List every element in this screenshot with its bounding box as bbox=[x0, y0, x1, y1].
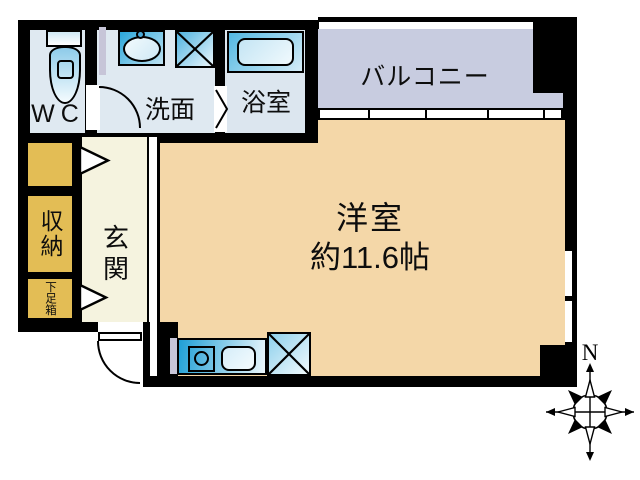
balcony-corner-wall bbox=[533, 17, 577, 93]
entrance-label: 玄関 bbox=[97, 224, 134, 286]
window-divider bbox=[543, 110, 545, 118]
bathtub-inner-icon bbox=[237, 38, 294, 66]
compass-ray-se bbox=[597, 419, 612, 434]
kitchen-sink-icon bbox=[221, 346, 256, 371]
entrance-right-wall-gap bbox=[149, 137, 157, 376]
right-window-upper bbox=[564, 250, 573, 297]
front-door-opening bbox=[98, 322, 143, 332]
floor-plan: 収納 下足箱 WC 洗面 浴室 バルコニー 玄関 洋室 約11.6帖 bbox=[0, 0, 640, 480]
washing-machine-pan-icon bbox=[175, 30, 215, 68]
shoe-box: 下足箱 bbox=[28, 279, 72, 318]
refrigerator-space-icon bbox=[267, 332, 311, 376]
compass-ray-sw bbox=[568, 419, 583, 434]
washroom-label-box: 洗面 bbox=[125, 90, 215, 126]
compass-north-label: N bbox=[582, 340, 599, 365]
washroom-label: 洗面 bbox=[145, 90, 195, 126]
wash-basin-faucet-icon bbox=[136, 30, 145, 39]
gas-stove-burner-icon bbox=[194, 351, 209, 366]
front-door-leaf bbox=[98, 332, 142, 341]
front-door-jamb bbox=[143, 322, 150, 378]
bathroom-door-opening bbox=[214, 86, 227, 132]
western-room-label: 洋室 bbox=[270, 198, 470, 238]
compass-ray-ne bbox=[597, 390, 612, 405]
upper-storage-box bbox=[28, 143, 72, 186]
window-divider bbox=[425, 110, 427, 118]
bottom-right-corner-wall bbox=[540, 345, 577, 387]
storage-box: 収納 bbox=[28, 196, 72, 272]
balcony-label-box: バルコニー bbox=[330, 55, 520, 95]
toilet-seat-icon bbox=[57, 60, 74, 79]
entrance-door-arc bbox=[98, 341, 140, 383]
bottom-wall bbox=[143, 376, 577, 387]
storage-label: 収納 bbox=[33, 209, 67, 259]
washroom-door-opening bbox=[86, 85, 100, 130]
window-divider bbox=[368, 110, 370, 118]
balcony-floor-extension bbox=[537, 93, 564, 108]
balcony-label: バルコニー bbox=[360, 57, 490, 93]
wc-label-box: WC bbox=[30, 98, 86, 130]
western-room-label-box: 洋室 約11.6帖 bbox=[270, 198, 470, 290]
wc-label: WC bbox=[31, 100, 85, 129]
kitchen-partition bbox=[170, 338, 177, 374]
window-divider bbox=[487, 110, 489, 118]
right-window-lower bbox=[564, 300, 573, 343]
bathroom-label-box: 浴室 bbox=[228, 84, 304, 118]
door-pocket-partition bbox=[99, 27, 106, 75]
wash-basin-bowl-icon bbox=[123, 36, 161, 62]
sliding-window-track bbox=[318, 108, 563, 120]
entrance-label-box: 玄関 bbox=[90, 195, 140, 315]
compass-circle bbox=[573, 395, 607, 429]
western-room-size-label: 約11.6帖 bbox=[270, 238, 470, 278]
bathroom-label: 浴室 bbox=[241, 83, 291, 119]
compass-ray-nw bbox=[568, 390, 583, 405]
toilet-icon bbox=[46, 30, 82, 47]
shoe-box-label: 下足箱 bbox=[42, 281, 58, 316]
